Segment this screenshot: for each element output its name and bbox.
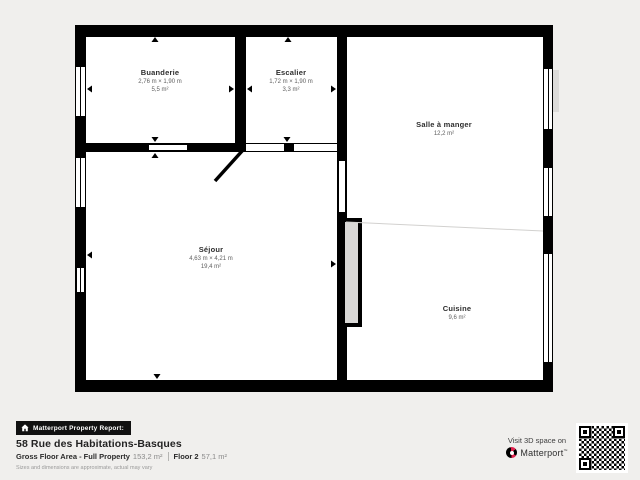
room-area: 3,3 m² <box>269 86 313 94</box>
room-name: Séjour <box>189 245 233 255</box>
gross-floor-area-value: 153,2 m² <box>133 452 163 461</box>
room-label-sejour: Séjour 4,63 m × 4,21 m 19,4 m² <box>189 245 233 271</box>
room-name: Buanderie <box>138 68 182 78</box>
room-label-salle-a-manger: Salle à manger 12,2 m² <box>416 120 472 138</box>
door-opening-escalier-right <box>294 143 337 152</box>
qr-finder-top-right <box>613 426 625 438</box>
wall-top <box>75 25 553 37</box>
brand-text: Matterport <box>520 448 563 458</box>
room-name: Escalier <box>269 68 313 78</box>
matterport-logo-icon <box>506 447 517 458</box>
room-dimensions: 2,76 m × 1,90 m <box>138 78 182 86</box>
wall-buanderie-escalier <box>235 25 246 152</box>
room-label-buanderie: Buanderie 2,76 m × 1,90 m 5,5 m² <box>138 68 182 94</box>
brand-name: Matterport™ <box>520 448 567 458</box>
qr-code <box>576 423 628 473</box>
room-name: Cuisine <box>443 304 472 314</box>
room-label-cuisine: Cuisine 9,6 m² <box>443 304 472 322</box>
report-badge-label: Matterport Property Report: <box>33 425 124 432</box>
floor-label: Floor 2 <box>174 452 199 461</box>
brand-row: Matterport™ <box>498 447 576 458</box>
divider <box>168 452 169 461</box>
trademark: ™ <box>563 448 567 453</box>
window-left-sejour-lower <box>76 267 85 293</box>
chimney-column <box>341 218 362 327</box>
room-name: Salle à manger <box>416 120 472 130</box>
report-badge: Matterport Property Report: <box>16 421 131 435</box>
door-center-wall <box>338 160 346 213</box>
window-right-middle <box>543 167 553 217</box>
qr-finder-top-left <box>579 426 591 438</box>
room-area: 12,2 m² <box>416 130 472 138</box>
room-dimensions: 4,63 m × 4,21 m <box>189 255 233 263</box>
floor-area-value: 57,1 m² <box>202 452 227 461</box>
disclaimer-text: Sizes and dimensions are approximate, ac… <box>16 465 152 471</box>
window-interior-buanderie <box>148 144 188 151</box>
home-icon <box>21 424 29 432</box>
door-opening-escalier-left <box>246 143 284 152</box>
window-left-sejour-upper <box>75 157 86 208</box>
visit-3d-label: Visit 3D space on <box>498 436 576 445</box>
promo-block: Visit 3D space on Matterport™ <box>498 436 576 458</box>
gross-floor-area-label: Gross Floor Area - Full Property <box>16 452 130 461</box>
room-dimensions: 1,72 m × 1,90 m <box>269 78 313 86</box>
room-area: 9,6 m² <box>443 314 472 322</box>
window-right-cuisine <box>543 253 553 363</box>
window-right-salle <box>543 68 553 130</box>
room-area: 5,5 m² <box>138 86 182 94</box>
area-summary: Gross Floor Area - Full Property 153,2 m… <box>16 452 227 461</box>
room-area: 19,4 m² <box>189 263 233 271</box>
room-label-escalier: Escalier 1,72 m × 1,90 m 3,3 m² <box>269 68 313 94</box>
qr-finder-bottom-left <box>579 458 591 470</box>
window-left-buanderie <box>75 66 86 117</box>
property-address: 58 Rue des Habitations-Basques <box>16 438 182 450</box>
wall-bottom <box>75 380 553 392</box>
